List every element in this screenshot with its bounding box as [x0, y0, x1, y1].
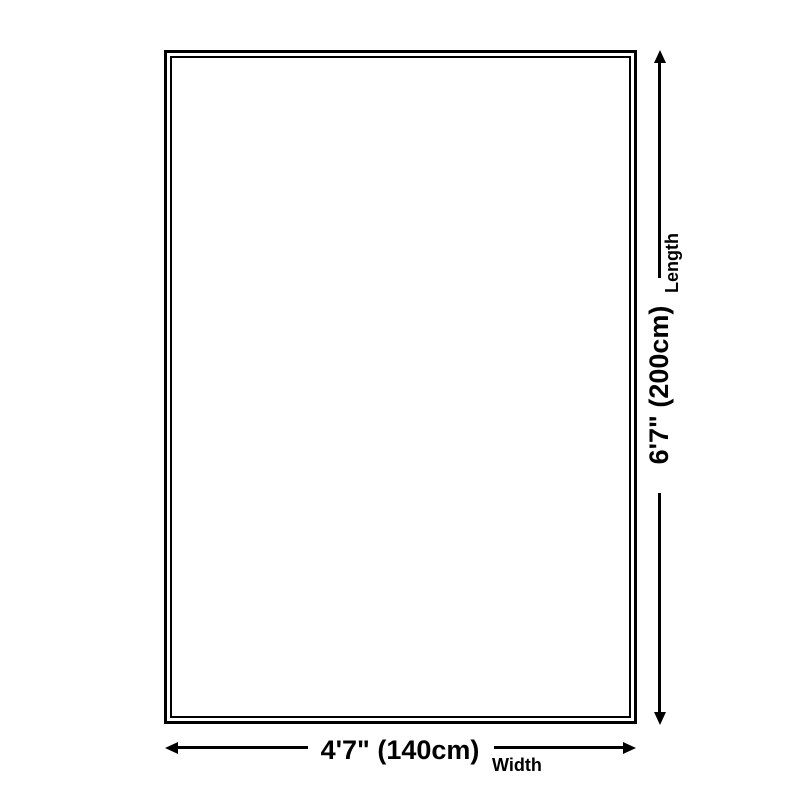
- rug-outline-inner: [170, 56, 631, 718]
- rug-outline: [164, 50, 637, 724]
- arrowhead-right-icon: [623, 742, 636, 754]
- length-arrow-lower-line: [658, 493, 661, 712]
- width-axis-label: Width: [492, 756, 542, 774]
- width-dimension-value: 4'7" (140cm): [290, 736, 510, 764]
- width-arrow-right-line: [494, 746, 623, 749]
- width-arrow-left-line: [177, 746, 308, 749]
- rug-size-diagram: Length 6'7" (200cm) 4'7" (140cm) Width: [0, 0, 800, 800]
- arrowhead-down-icon: [654, 712, 666, 725]
- length-arrow-upper-line: [658, 62, 661, 278]
- length-dimension-value: 6'7" (200cm): [645, 275, 673, 495]
